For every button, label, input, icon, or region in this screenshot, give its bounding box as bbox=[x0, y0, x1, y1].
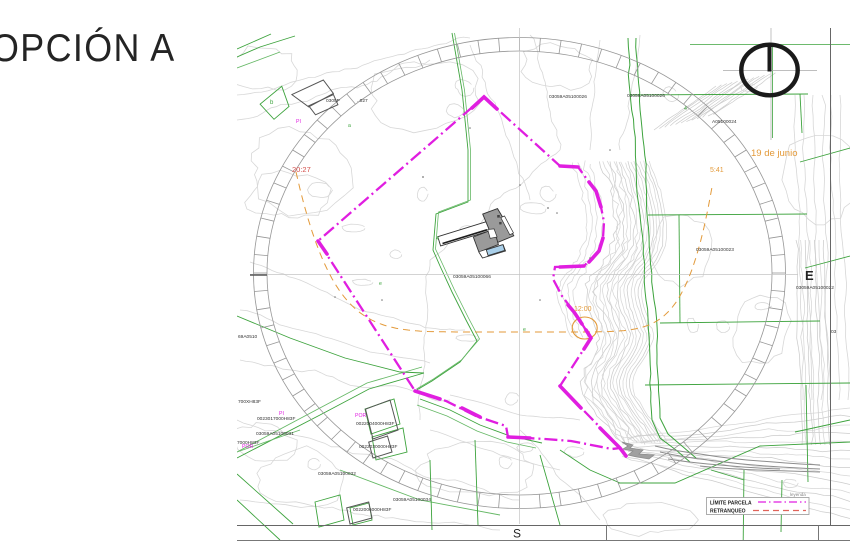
svg-text:POR: POR bbox=[242, 444, 253, 450]
svg-text:20:27: 20:27 bbox=[292, 165, 311, 174]
svg-text:03059A05100066: 03059A05100066 bbox=[453, 274, 491, 280]
svg-text:03059A05100023: 03059A05100023 bbox=[696, 247, 734, 253]
svg-text:e: e bbox=[379, 281, 382, 287]
svg-text:0022006000H83F: 0022006000H83F bbox=[353, 507, 391, 513]
svg-text:RETRANQUEO: RETRANQUEO bbox=[710, 509, 746, 515]
svg-text:PI: PI bbox=[279, 411, 284, 417]
svg-text:LÍMITE PARCELA: LÍMITE PARCELA bbox=[710, 499, 752, 507]
svg-text:A05100024: A05100024 bbox=[712, 119, 737, 125]
svg-text:03059A05100022: 03059A05100022 bbox=[796, 285, 834, 291]
svg-text:PI: PI bbox=[296, 119, 301, 125]
svg-text:700XH83F: 700XH83F bbox=[238, 399, 261, 405]
svg-text:0022030000H83F: 0022030000H83F bbox=[359, 444, 397, 450]
svg-text:5:41: 5:41 bbox=[710, 167, 724, 174]
svg-text:E: E bbox=[805, 268, 814, 283]
svg-text:69A0510: 69A0510 bbox=[238, 334, 258, 340]
svg-text:0305P: 0305P bbox=[326, 98, 340, 104]
svg-text:03059A05100031: 03059A05100031 bbox=[256, 431, 294, 437]
svg-text:12:00: 12:00 bbox=[574, 306, 592, 313]
svg-text:4: 4 bbox=[436, 236, 439, 242]
svg-text:03059A05100032: 03059A05100032 bbox=[318, 471, 356, 477]
svg-text:0022004000H83F: 0022004000H83F bbox=[356, 421, 394, 427]
svg-text:POR: POR bbox=[355, 413, 366, 419]
svg-text:leyenda: leyenda bbox=[790, 492, 806, 497]
svg-text:03059A05100026: 03059A05100026 bbox=[549, 94, 587, 100]
svg-text:..027: ..027 bbox=[357, 98, 368, 104]
svg-text:19 de junio: 19 de junio bbox=[751, 148, 797, 159]
svg-text:03059A05100034: 03059A05100034 bbox=[393, 497, 431, 503]
svg-text:e: e bbox=[523, 327, 526, 333]
svg-text:03: 03 bbox=[831, 329, 837, 335]
svg-text:a: a bbox=[348, 123, 351, 129]
svg-text:b: b bbox=[270, 100, 274, 106]
svg-text:4: 4 bbox=[684, 106, 687, 112]
svg-text:S: S bbox=[513, 527, 521, 541]
svg-text:0023017000H83F: 0023017000H83F bbox=[257, 416, 295, 422]
svg-text:03059A05100026: 03059A05100026 bbox=[627, 93, 665, 99]
